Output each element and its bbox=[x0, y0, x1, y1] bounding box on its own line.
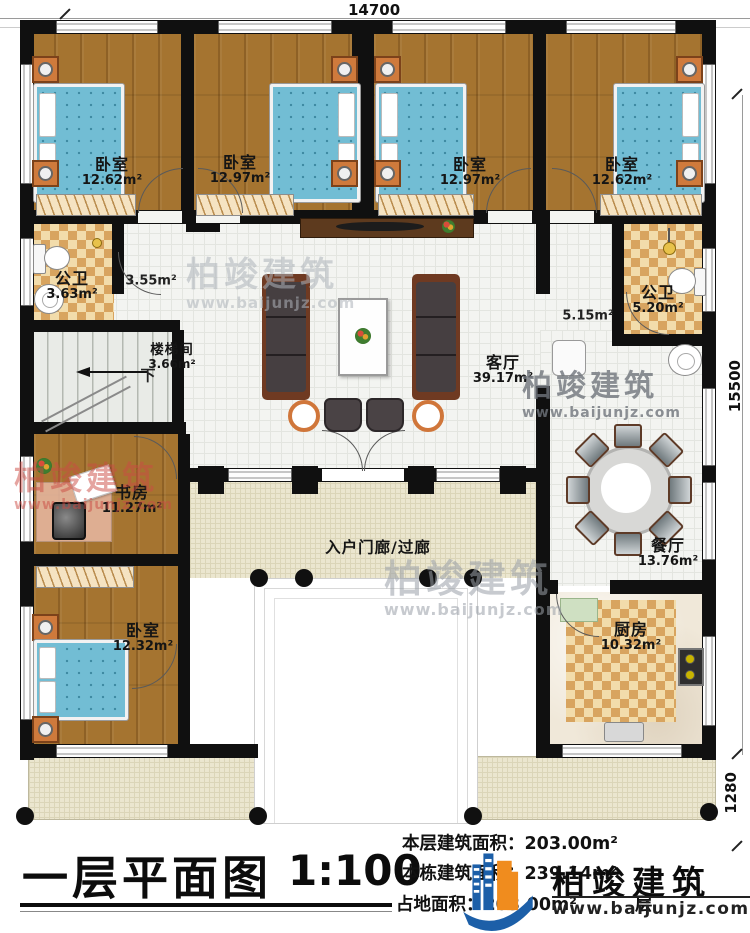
window bbox=[703, 388, 715, 466]
room-label-dining: 餐厅 13.76m² bbox=[638, 537, 698, 569]
room-label-bath-left: 公卫 3.63m² bbox=[46, 270, 97, 302]
wardrobe bbox=[600, 194, 702, 216]
room-label-bedroom-5: 卧室 12.32m² bbox=[113, 622, 173, 654]
room-label-bedroom-2: 卧室 12.97m² bbox=[210, 154, 270, 186]
wardrobe bbox=[378, 194, 474, 216]
flower-icon bbox=[355, 328, 371, 344]
lamp-icon bbox=[663, 242, 676, 255]
dimension-line-right bbox=[742, 95, 743, 755]
stair-down-label: 下 bbox=[140, 365, 155, 386]
title-underline bbox=[20, 903, 392, 907]
room-label-bath-right: 公卫 5.20m² bbox=[632, 284, 683, 316]
pillow bbox=[39, 681, 56, 713]
sink-icon bbox=[668, 344, 702, 376]
wall-segment bbox=[20, 554, 182, 566]
window bbox=[56, 745, 168, 757]
wardrobe bbox=[36, 194, 136, 216]
dimension-tick bbox=[731, 88, 742, 99]
nightstand bbox=[331, 56, 358, 83]
dining-chair bbox=[668, 476, 692, 504]
side-table bbox=[412, 400, 444, 432]
pillow bbox=[682, 93, 699, 137]
armchair bbox=[324, 398, 362, 432]
wall-segment bbox=[20, 422, 186, 434]
terrace-right bbox=[476, 756, 716, 820]
window bbox=[228, 469, 292, 481]
dimension-right: 15500 bbox=[726, 360, 744, 412]
column bbox=[250, 569, 268, 587]
sofa-seat bbox=[416, 282, 456, 392]
sofa bbox=[262, 274, 310, 400]
nightstand bbox=[676, 56, 703, 83]
column bbox=[295, 569, 313, 587]
sofa-seat bbox=[266, 282, 306, 392]
nightstand bbox=[374, 56, 401, 83]
wall-segment bbox=[536, 386, 550, 480]
plant-icon bbox=[442, 220, 455, 233]
room-label-porch: 入户门廊/过廊 bbox=[325, 539, 431, 556]
dimension-tick bbox=[731, 840, 742, 851]
dimension-right-lower: 1280 bbox=[722, 772, 740, 814]
courtyard-step bbox=[274, 598, 458, 823]
wall-segment bbox=[20, 320, 180, 332]
nightstand bbox=[676, 160, 703, 187]
coffee-table bbox=[338, 298, 388, 376]
wall-segment bbox=[178, 434, 190, 756]
wall-segment bbox=[612, 222, 624, 346]
brand-logo-icon bbox=[452, 848, 544, 932]
pillow bbox=[381, 93, 398, 137]
porch-column bbox=[408, 466, 434, 494]
nightstand bbox=[32, 716, 59, 743]
wall-segment bbox=[536, 222, 550, 294]
hall-left-area: 3.55m² bbox=[125, 274, 176, 289]
column bbox=[249, 807, 267, 825]
dimension-tick bbox=[731, 748, 742, 759]
plant-icon bbox=[36, 458, 52, 474]
dining-chair bbox=[566, 476, 590, 504]
column bbox=[464, 569, 482, 587]
nightstand bbox=[374, 160, 401, 187]
nightstand bbox=[331, 160, 358, 187]
window bbox=[562, 745, 682, 757]
wardrobe bbox=[36, 566, 134, 588]
window bbox=[21, 456, 33, 542]
room-label-kitchen: 厨房 10.32m² bbox=[601, 621, 661, 653]
room-porch bbox=[190, 478, 538, 578]
side-table bbox=[288, 400, 320, 432]
column bbox=[464, 807, 482, 825]
column bbox=[700, 803, 718, 821]
column bbox=[16, 807, 34, 825]
room-label-study: 书房 11.27m² bbox=[102, 484, 162, 516]
wall-segment bbox=[186, 222, 220, 232]
title-underline-2 bbox=[20, 911, 392, 912]
pillow bbox=[338, 93, 355, 137]
wall-segment bbox=[536, 480, 550, 746]
window bbox=[703, 636, 715, 726]
kitchen-sink-icon bbox=[604, 722, 644, 742]
room-label-living: 客厅 39.17m² bbox=[473, 354, 533, 386]
tv-icon bbox=[336, 222, 424, 231]
room-label-bedroom-4: 卧室 12.62m² bbox=[592, 156, 652, 188]
computer-icon bbox=[52, 502, 86, 540]
dining-chair bbox=[614, 424, 642, 448]
wall-segment bbox=[612, 334, 716, 346]
floor-plan: 14700 15500 1280 bbox=[0, 0, 750, 933]
toilet-icon bbox=[44, 246, 70, 270]
sofa bbox=[412, 274, 460, 400]
brand-site: www.baijunjz.com bbox=[552, 896, 750, 919]
wall-segment bbox=[610, 580, 702, 594]
nightstand bbox=[32, 160, 59, 187]
nightstand bbox=[32, 614, 59, 641]
window bbox=[21, 238, 33, 306]
dimension-top: 14700 bbox=[348, 1, 400, 19]
nightstand bbox=[32, 56, 59, 83]
window bbox=[56, 21, 158, 33]
window bbox=[703, 482, 715, 560]
window bbox=[392, 21, 506, 33]
porch-column bbox=[500, 466, 526, 494]
wall-segment bbox=[533, 20, 546, 222]
window bbox=[703, 64, 715, 184]
hall-right-area: 5.15m² bbox=[562, 309, 613, 324]
porch-column bbox=[292, 466, 318, 494]
room-label-bedroom-3: 卧室 12.97m² bbox=[440, 156, 500, 188]
window bbox=[566, 21, 676, 33]
column bbox=[419, 569, 437, 587]
pillow bbox=[39, 93, 56, 137]
light-icon bbox=[92, 238, 102, 248]
stove-icon bbox=[678, 648, 704, 686]
pillow bbox=[39, 647, 56, 679]
plan-title: 一层平面图 bbox=[22, 842, 272, 908]
stair-direction-arrow bbox=[76, 367, 90, 377]
room-label-bedroom-1: 卧室 12.62m² bbox=[82, 156, 142, 188]
window bbox=[436, 469, 500, 481]
wall-segment bbox=[536, 580, 558, 594]
window bbox=[218, 21, 332, 33]
terrace-left bbox=[28, 756, 258, 820]
armchair bbox=[366, 398, 404, 432]
stair-arrow-line bbox=[90, 371, 148, 373]
water-dispenser-icon bbox=[552, 340, 586, 376]
porch-column bbox=[198, 466, 224, 494]
